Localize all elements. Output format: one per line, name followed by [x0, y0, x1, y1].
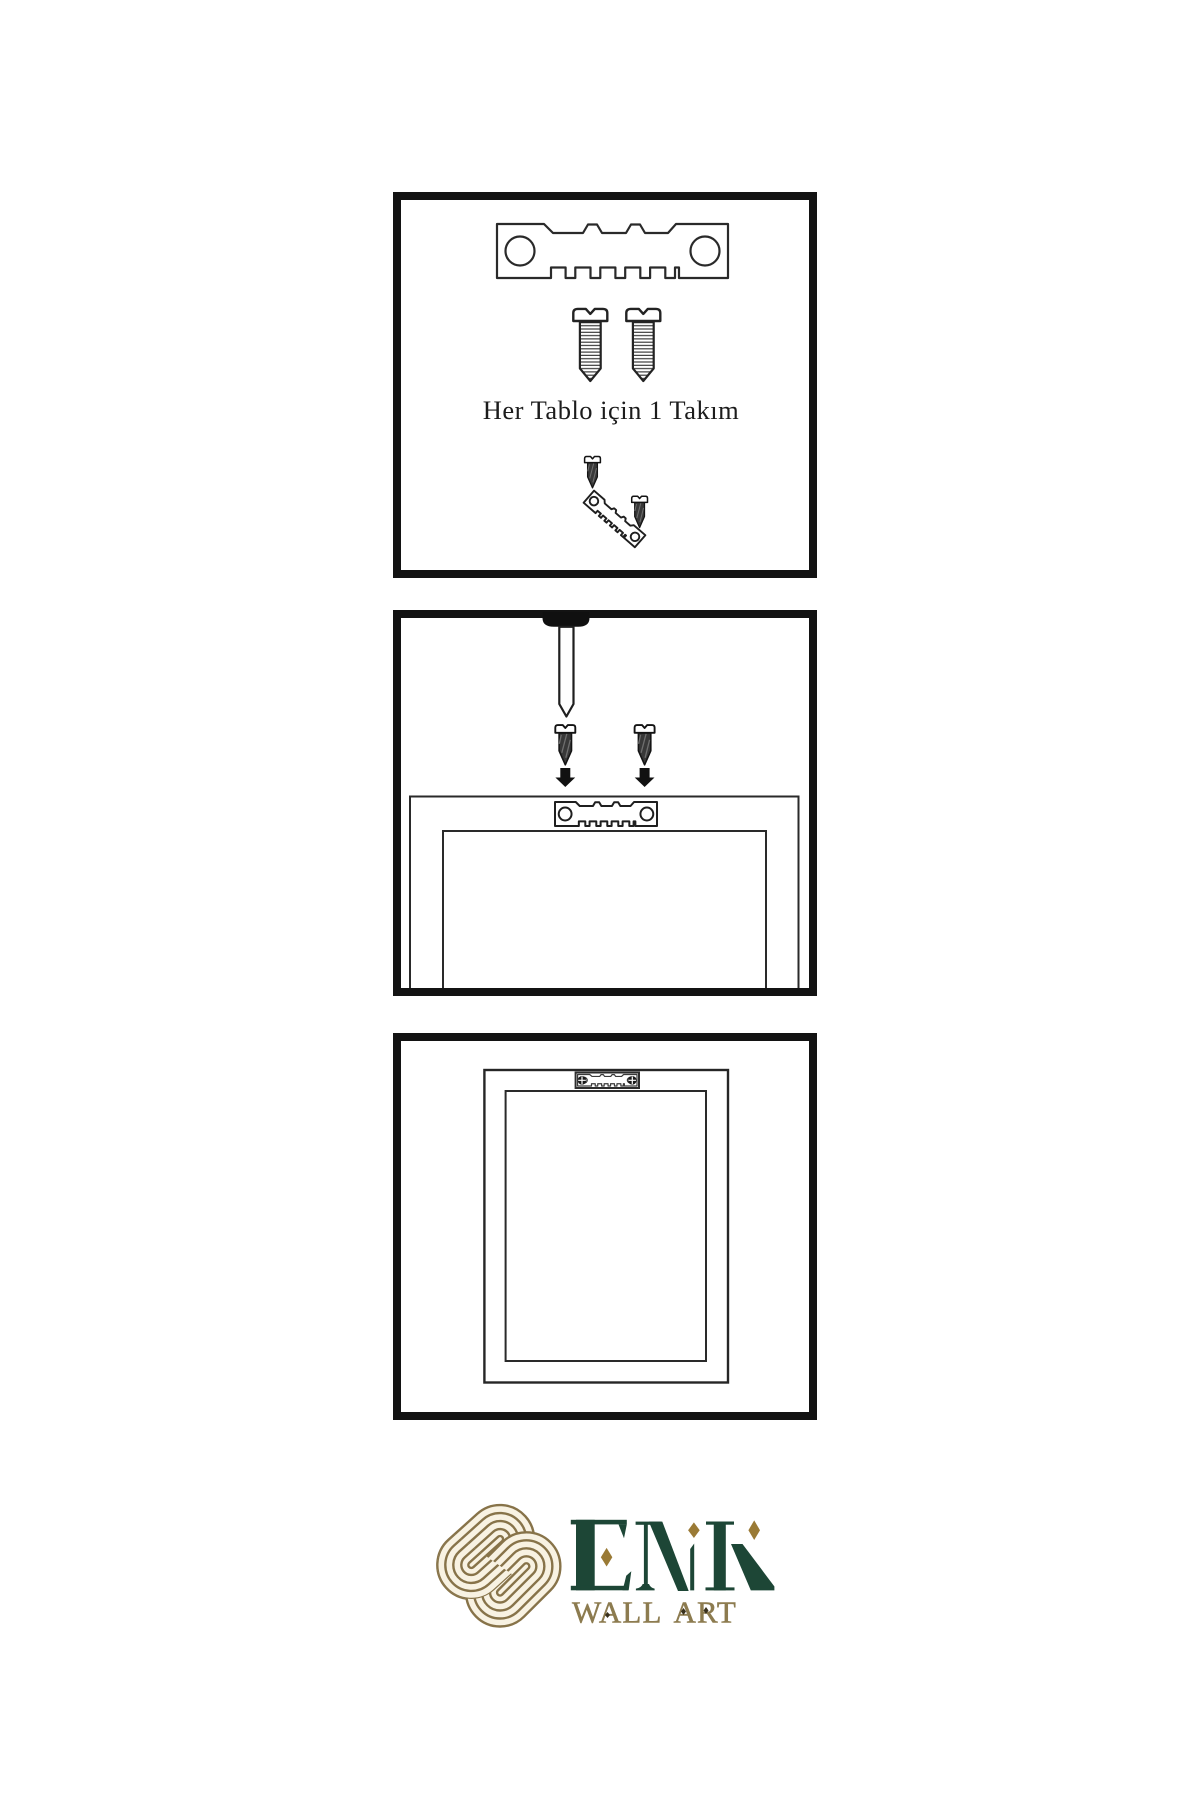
svg-text:Her Tablo için 1 Takım: Her Tablo için 1 Takım [483, 395, 740, 425]
svg-text:WALL ART: WALL ART [572, 1595, 737, 1630]
